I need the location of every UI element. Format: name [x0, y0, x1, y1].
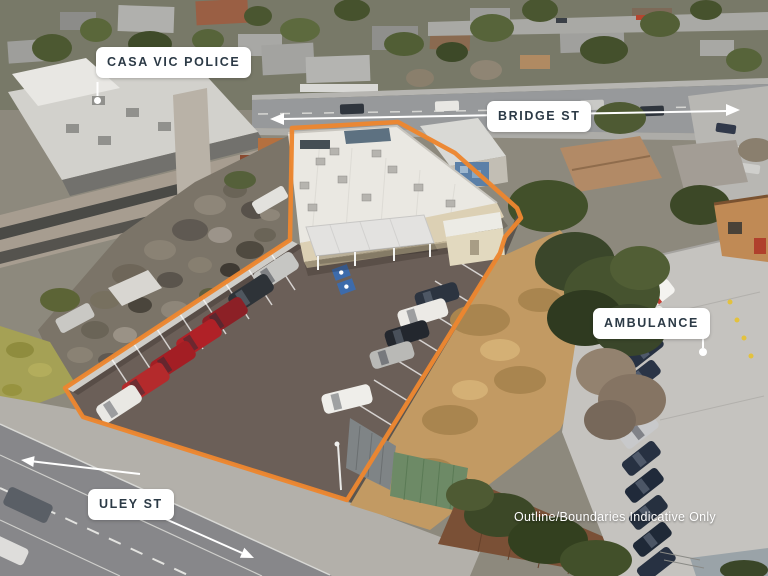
label-bridge-st: BRIDGE ST: [487, 101, 591, 132]
label-casa-vic-police: CASA VIC POLICE: [96, 47, 251, 78]
disclaimer-text: Outline/Boundaries Indicative Only: [514, 510, 716, 524]
aerial-photo: CASA VIC POLICE BRIDGE ST AMBULANCE ULEY…: [0, 0, 768, 576]
label-uley-st: ULEY ST: [88, 489, 174, 520]
ambulance-building: [714, 196, 768, 262]
label-ambulance: AMBULANCE: [593, 308, 710, 339]
